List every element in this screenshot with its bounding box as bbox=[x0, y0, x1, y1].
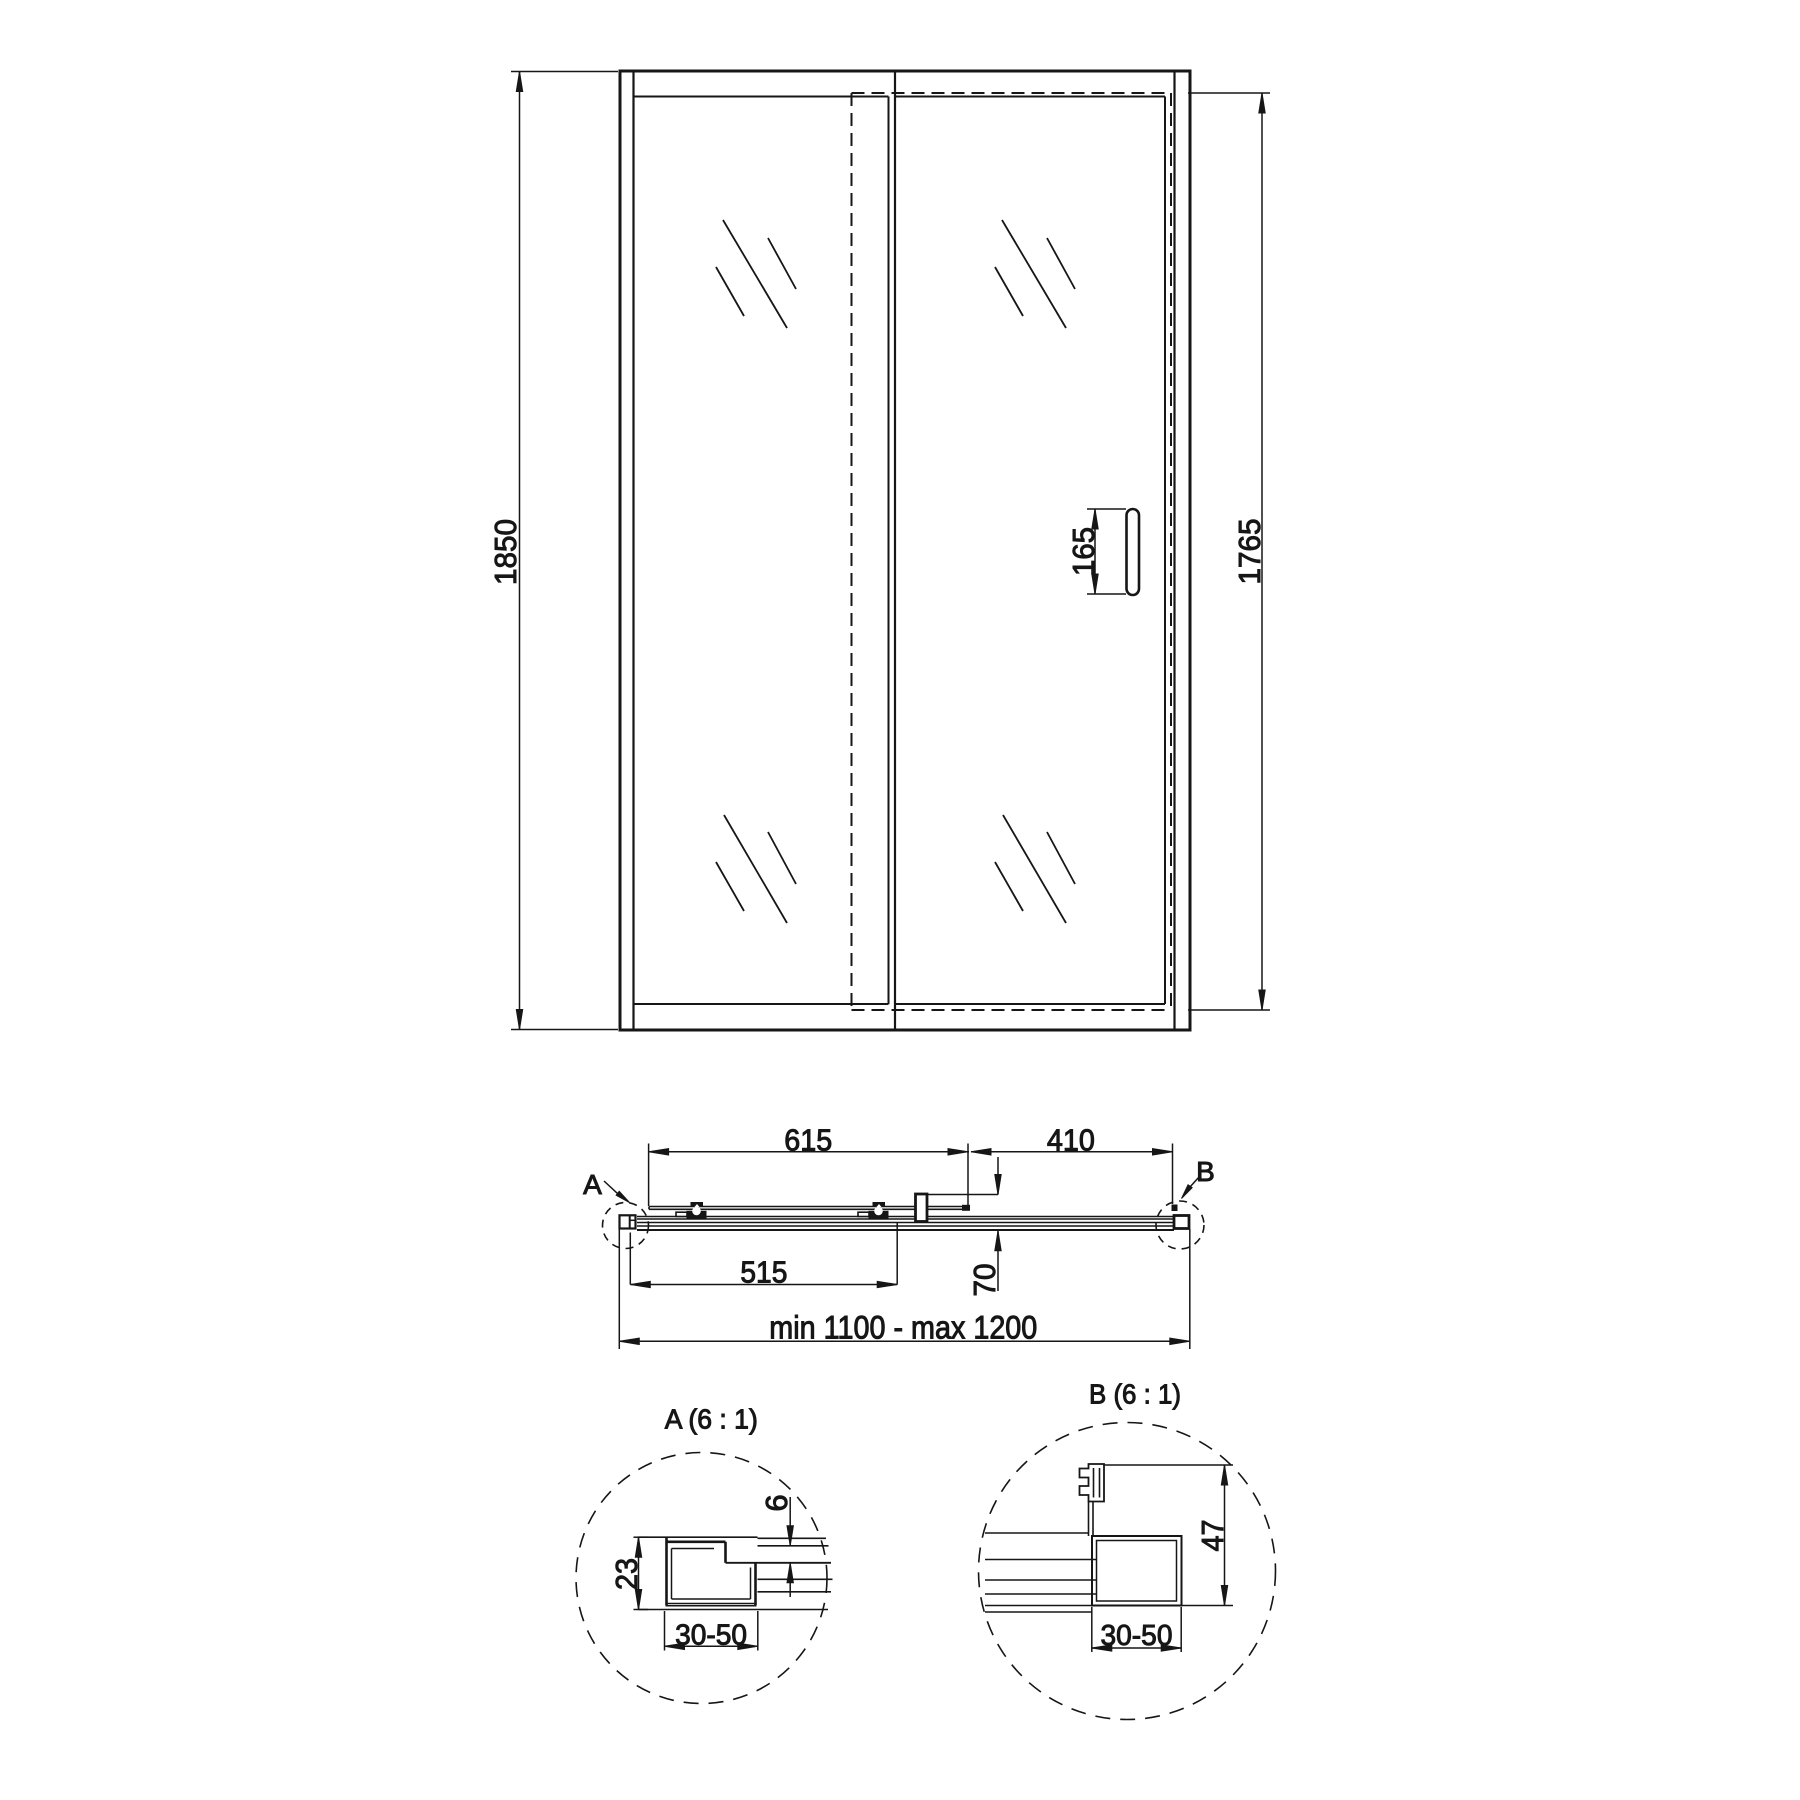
svg-text:410: 410 bbox=[1047, 1123, 1095, 1158]
svg-text:615: 615 bbox=[784, 1123, 832, 1158]
svg-text:B (6 : 1): B (6 : 1) bbox=[1089, 1378, 1181, 1409]
svg-text:6: 6 bbox=[759, 1494, 794, 1511]
svg-text:1765: 1765 bbox=[1232, 519, 1267, 585]
svg-text:47: 47 bbox=[1195, 1520, 1230, 1552]
svg-text:B: B bbox=[1196, 1156, 1215, 1187]
svg-text:515: 515 bbox=[740, 1255, 787, 1290]
svg-text:A: A bbox=[583, 1169, 602, 1200]
svg-text:70: 70 bbox=[967, 1264, 1002, 1297]
svg-text:1850: 1850 bbox=[488, 519, 523, 585]
svg-text:30-50: 30-50 bbox=[675, 1620, 747, 1652]
svg-text:165: 165 bbox=[1066, 527, 1101, 576]
svg-text:30-50: 30-50 bbox=[1101, 1620, 1173, 1652]
svg-text:23: 23 bbox=[609, 1558, 644, 1590]
svg-text:min 1100 - max 1200: min 1100 - max 1200 bbox=[769, 1310, 1037, 1346]
svg-text:A (6 : 1): A (6 : 1) bbox=[665, 1404, 758, 1435]
